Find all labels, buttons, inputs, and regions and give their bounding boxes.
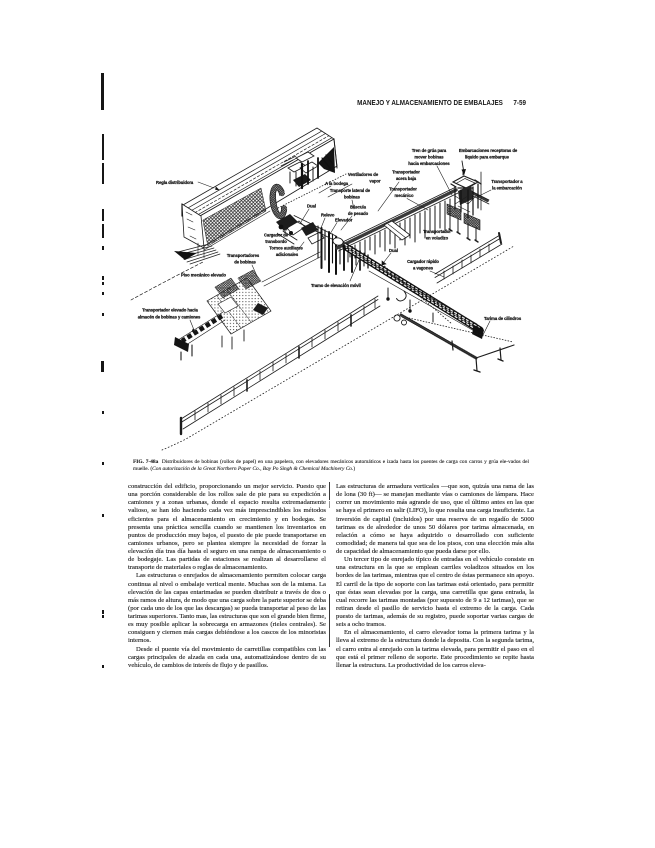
svg-text:Tramo de elevación móvil: Tramo de elevación móvil bbox=[311, 283, 361, 288]
svg-text:vapor: vapor bbox=[369, 179, 381, 184]
svg-text:Transportadores: Transportadores bbox=[227, 253, 260, 258]
svg-text:a vagones: a vagones bbox=[413, 266, 434, 271]
svg-text:bobinas: bobinas bbox=[344, 195, 360, 200]
svg-text:A la bodega: A la bodega bbox=[325, 181, 349, 186]
svg-text:de pesado: de pesado bbox=[348, 211, 369, 216]
svg-text:Cargador de: Cargador de bbox=[264, 233, 289, 238]
svg-text:hacia embarcaciones: hacia embarcaciones bbox=[408, 161, 450, 166]
svg-text:mecánico: mecánico bbox=[395, 193, 414, 198]
svg-text:Piso mecánico elevado: Piso mecánico elevado bbox=[181, 273, 227, 278]
svg-text:Regla distribuidora: Regla distribuidora bbox=[156, 180, 194, 185]
svg-text:Transportador: Transportador bbox=[392, 170, 420, 175]
svg-text:Tarima de cilindros: Tarima de cilindros bbox=[484, 316, 522, 321]
svg-text:Transporte lateral de: Transporte lateral de bbox=[330, 188, 371, 193]
svg-text:Transportador elevado hacia: Transportador elevado hacia bbox=[142, 308, 198, 313]
svg-text:almacén de bobinas y camiones: almacén de bobinas y camiones bbox=[138, 315, 201, 320]
svg-text:la embarcación: la embarcación bbox=[492, 186, 522, 191]
svg-text:Cargador rápido: Cargador rápido bbox=[407, 259, 439, 264]
svg-text:Báscula: Báscula bbox=[350, 205, 366, 210]
svg-text:Ventiladores de: Ventiladores de bbox=[348, 172, 379, 177]
svg-text:de bobinas: de bobinas bbox=[234, 260, 256, 265]
svg-text:Dual: Dual bbox=[307, 204, 316, 209]
svg-text:Transportador a: Transportador a bbox=[491, 179, 523, 184]
svg-text:transbordo: transbordo bbox=[265, 239, 287, 244]
svg-text:Tren de grúa para: Tren de grúa para bbox=[412, 148, 447, 153]
svg-text:en voladizo: en voladizo bbox=[426, 236, 449, 241]
svg-text:Dual: Dual bbox=[389, 248, 398, 253]
svg-text:Transportador: Transportador bbox=[389, 187, 417, 192]
svg-text:líquido para embarque: líquido para embarque bbox=[465, 155, 510, 160]
svg-text:mover bobinas: mover bobinas bbox=[414, 155, 444, 160]
svg-text:Embarcaciones receptoras de: Embarcaciones receptoras de bbox=[459, 148, 518, 153]
svg-text:Relevo: Relevo bbox=[321, 213, 335, 218]
svg-text:acera baja: acera baja bbox=[396, 176, 417, 181]
svg-text:adicionales: adicionales bbox=[276, 252, 299, 257]
svg-text:Transportador: Transportador bbox=[423, 229, 451, 234]
